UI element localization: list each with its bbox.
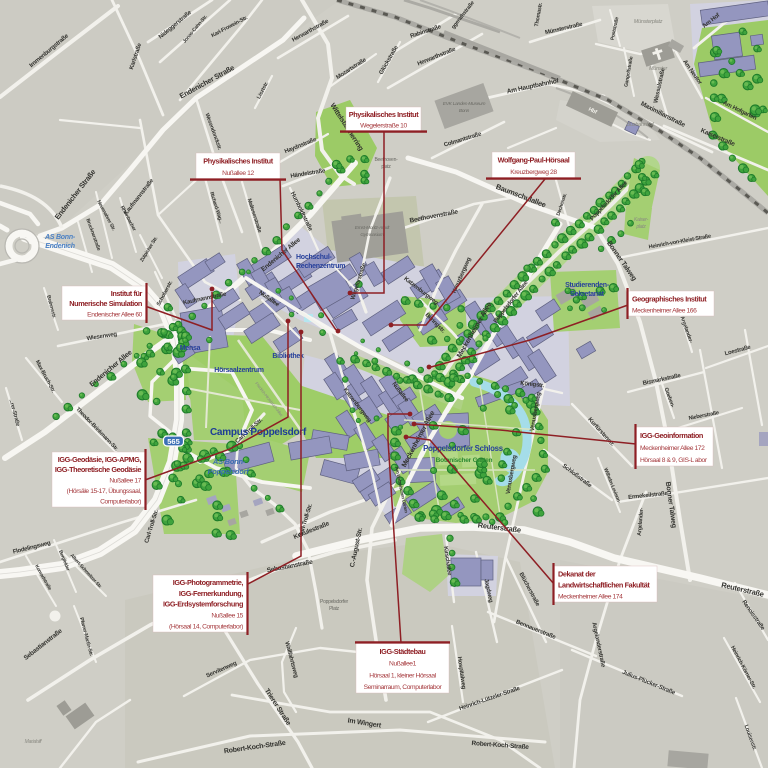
svg-text:Numerische Simulation: Numerische Simulation <box>69 299 142 308</box>
svg-text:Ernst-Moritz-Arndt: Ernst-Moritz-Arndt <box>355 225 390 231</box>
svg-text:Physikalisches Institut: Physikalisches Institut <box>203 157 273 166</box>
svg-text:Bonn: Bonn <box>459 108 470 114</box>
svg-text:(Hörsäle 15-17, Übungssaal,: (Hörsäle 15-17, Übungssaal, <box>67 487 142 495</box>
svg-text:Nußallee 15: Nußallee 15 <box>211 613 243 620</box>
svg-text:Wegelerstraße 10: Wegelerstraße 10 <box>360 122 407 129</box>
svg-text:Mensa: Mensa <box>180 345 201 352</box>
svg-text:IGG-Erdsystemforschung: IGG-Erdsystemforschung <box>163 600 243 609</box>
svg-text:IGG-Photogrammetrie,: IGG-Photogrammetrie, <box>173 578 244 587</box>
svg-text:Meckenheimer Allee 174: Meckenheimer Allee 174 <box>558 593 623 600</box>
svg-text:Wolfgang-Paul-Hörsaal: Wolfgang-Paul-Hörsaal <box>498 156 570 165</box>
svg-text:Münsterplatz: Münsterplatz <box>634 19 663 25</box>
svg-text:(Hörsaal 14, Computerlabor): (Hörsaal 14, Computerlabor) <box>169 623 243 630</box>
svg-text:AS Bonn-: AS Bonn- <box>212 457 246 466</box>
svg-text:Hörsaal 1, kleiner Hörsaal: Hörsaal 1, kleiner Hörsaal <box>369 672 436 679</box>
svg-text:IGG-Geoinformation: IGG-Geoinformation <box>640 431 703 440</box>
svg-text:Platz: Platz <box>329 606 340 612</box>
svg-text:Meckenheimer Allee 172: Meckenheimer Allee 172 <box>640 445 705 452</box>
svg-text:Poppelsdorf: Poppelsdorf <box>207 467 250 476</box>
svg-text:Dekanat der: Dekanat der <box>558 569 596 578</box>
svg-text:Münster: Münster <box>649 66 669 72</box>
svg-text:IGG-Städtebau: IGG-Städtebau <box>380 647 426 656</box>
svg-text:Sekretariat: Sekretariat <box>570 291 604 298</box>
svg-text:Botanischer Garten: Botanischer Garten <box>436 457 493 464</box>
svg-text:Hörsaalzentrum: Hörsaalzentrum <box>214 367 263 374</box>
svg-text:Endenich: Endenich <box>45 243 75 250</box>
svg-text:Poppelsdorfer: Poppelsdorfer <box>320 599 348 605</box>
svg-text:AS Bonn-: AS Bonn- <box>44 234 76 241</box>
svg-text:Nußallee 12: Nußallee 12 <box>222 170 254 177</box>
svg-text:Geographisches Institut: Geographisches Institut <box>632 294 707 303</box>
svg-text:Kreuzbergweg 28: Kreuzbergweg 28 <box>510 169 557 176</box>
svg-text:Nußallee1: Nußallee1 <box>389 661 417 668</box>
svg-text:Nußallee 17: Nußallee 17 <box>109 478 141 485</box>
svg-text:Mariahilf: Mariahilf <box>25 739 43 745</box>
svg-text:IGG-Theoretische Geodäsie: IGG-Theoretische Geodäsie <box>55 465 141 474</box>
svg-text:Landwirtschaftlichen Fakultät: Landwirtschaftlichen Fakultät <box>558 580 650 589</box>
svg-text:Busbahnhof: Busbahnhof <box>627 122 655 128</box>
svg-text:Endenischer Allee 60: Endenischer Allee 60 <box>87 311 143 318</box>
svg-text:Rechenzentrum: Rechenzentrum <box>296 263 345 270</box>
svg-text:Hochschul-: Hochschul- <box>296 254 333 261</box>
svg-text:IGG-Geodäsie, IGG-APMG,: IGG-Geodäsie, IGG-APMG, <box>58 455 142 464</box>
svg-text:platz: platz <box>381 164 391 170</box>
svg-text:Seminarraum, Computerlabor: Seminarraum, Computerlabor <box>364 684 443 691</box>
svg-text:Kaiser-: Kaiser- <box>634 217 649 223</box>
svg-text:Hörsaal 8 & 9, GIS-L abor: Hörsaal 8 & 9, GIS-L abor <box>640 457 708 464</box>
svg-text:platz: platz <box>635 224 646 230</box>
svg-text:Institut für: Institut für <box>111 289 143 298</box>
svg-text:IGG-Fernerkundung,: IGG-Fernerkundung, <box>179 589 244 598</box>
svg-text:Gymnasium: Gymnasium <box>360 232 384 238</box>
svg-text:Meckenheimer Allee 166: Meckenheimer Allee 166 <box>632 307 697 314</box>
svg-text:565: 565 <box>167 437 180 446</box>
svg-text:EVK Landes-Museum: EVK Landes-Museum <box>443 101 486 107</box>
svg-text:Beethoven-: Beethoven- <box>374 157 398 163</box>
svg-text:Studierenden-: Studierenden- <box>565 282 610 289</box>
svg-text:Physikalisches Institut: Physikalisches Institut <box>349 110 419 119</box>
svg-text:Computerlabor): Computerlabor) <box>100 498 141 505</box>
